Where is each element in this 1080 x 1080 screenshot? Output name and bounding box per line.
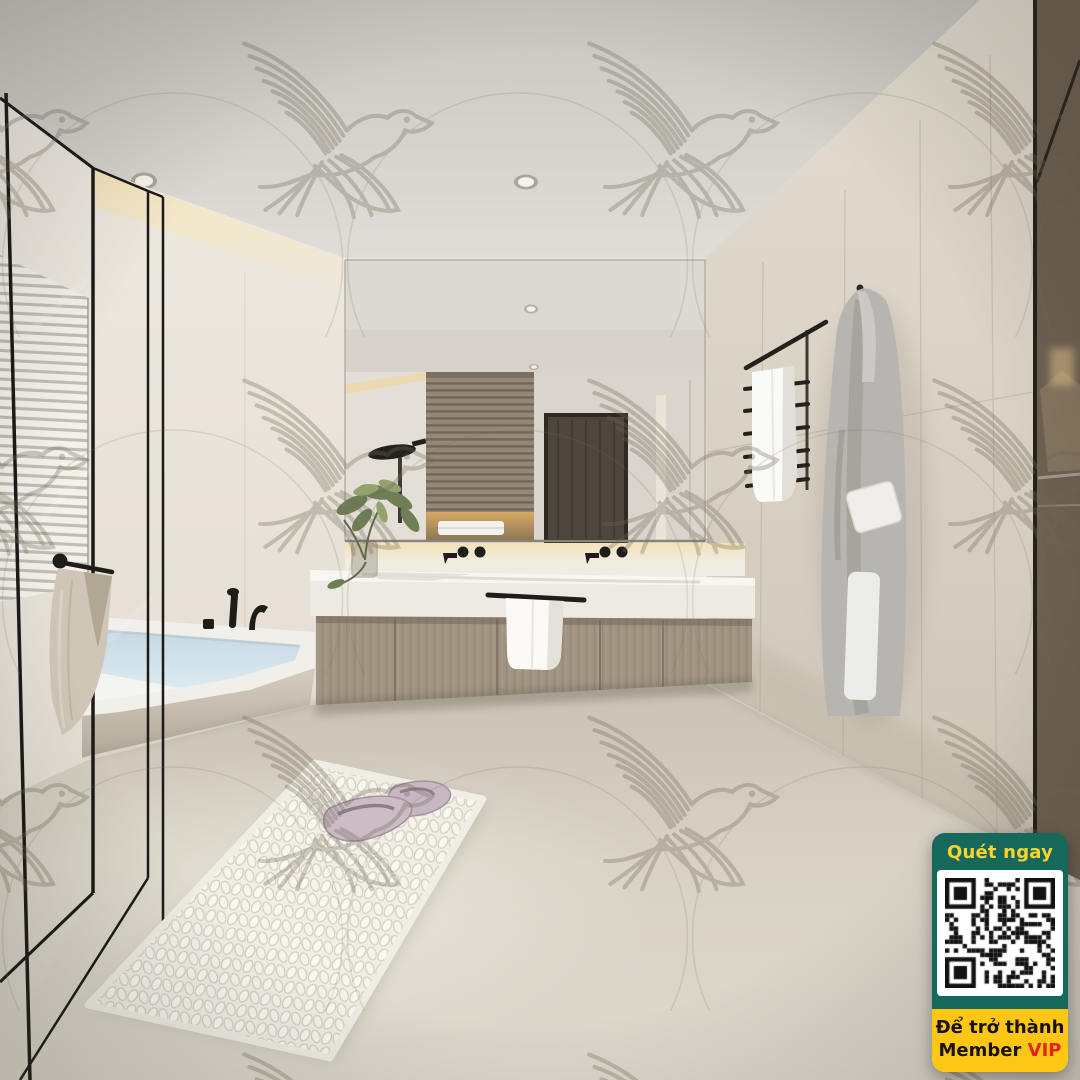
qr-scan-label: Quét ngay — [947, 842, 1053, 863]
qr-badge-top: Quét ngay — [932, 833, 1068, 1009]
qr-footer-vip: VIP — [1028, 1040, 1062, 1061]
bathroom-render: Quét ngay Để trở thành Member VIP — [0, 0, 1080, 1080]
scene-art — [0, 0, 1080, 1080]
vignette — [0, 0, 1080, 1080]
qr-badge-footer: Để trở thành Member VIP — [932, 1009, 1068, 1072]
qr-code-panel — [937, 870, 1063, 996]
qr-footer-member: Member — [939, 1040, 1022, 1061]
qr-badge[interactable]: Quét ngay Để trở thành Member VIP — [932, 833, 1068, 1072]
qr-footer-line1: Để trở thành — [936, 1017, 1065, 1038]
qr-code — [945, 878, 1055, 988]
